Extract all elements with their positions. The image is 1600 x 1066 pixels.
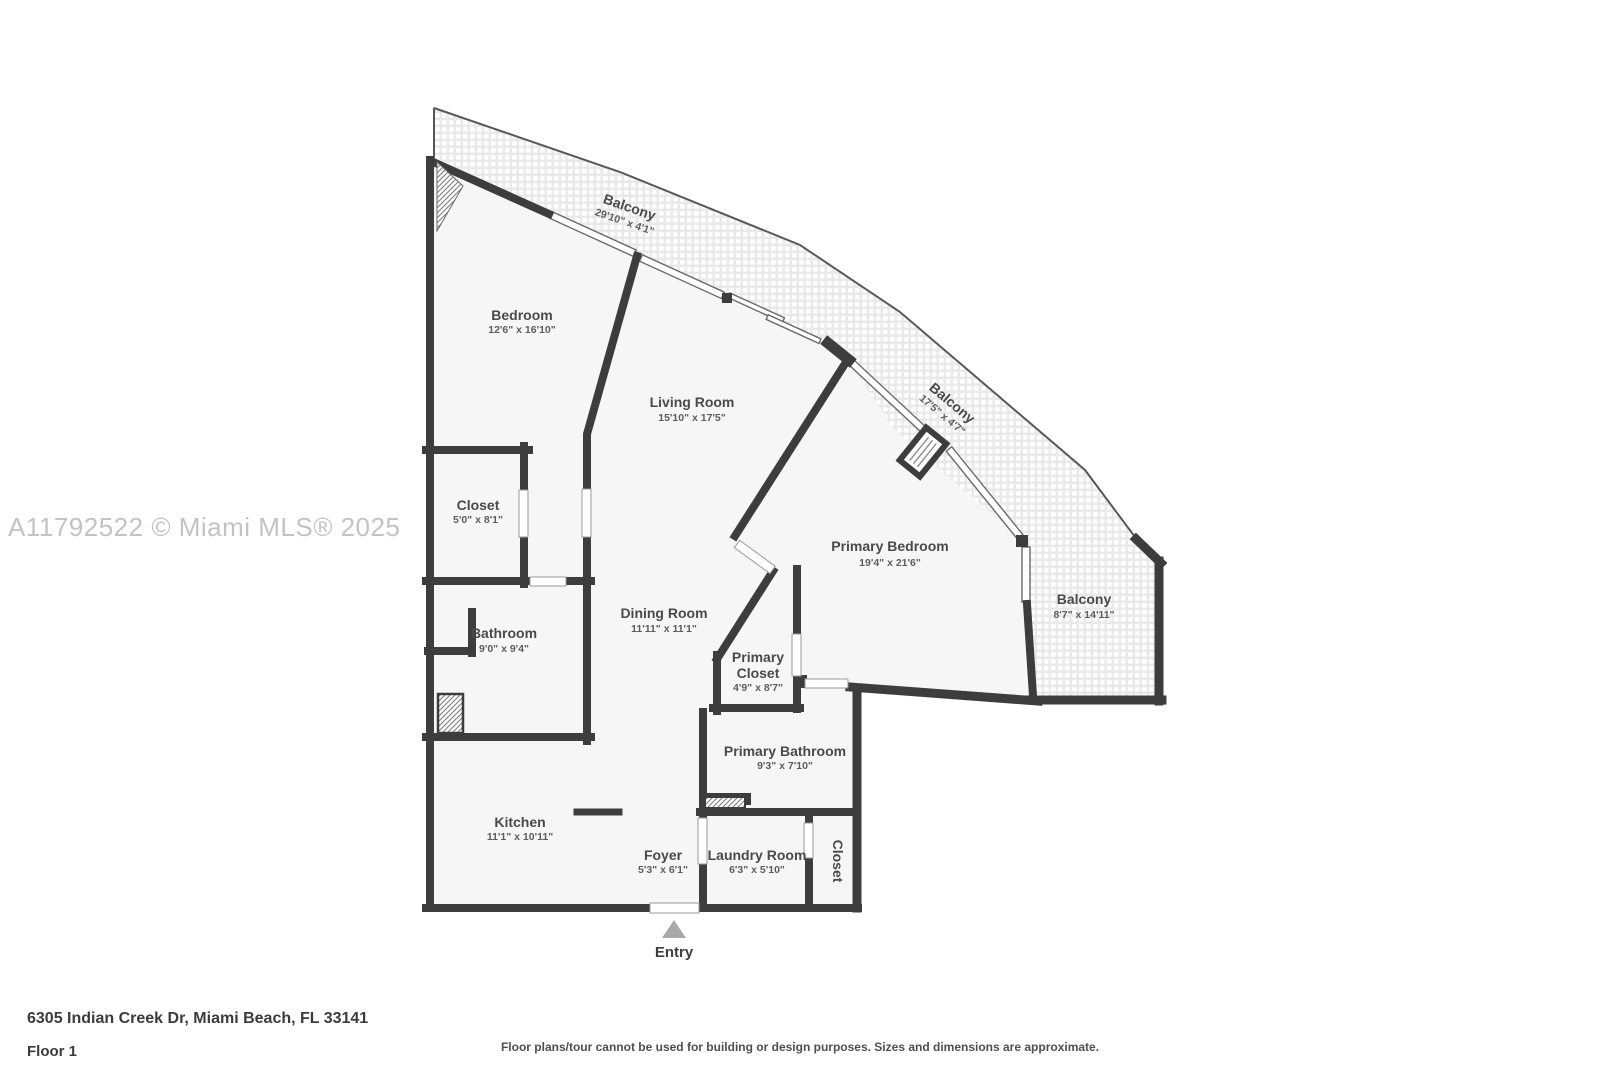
room-label-closet: Closet 5'0" x 8'1": [453, 497, 503, 526]
room-name: Closet: [830, 840, 846, 883]
room-name: Laundry Room: [708, 847, 807, 863]
room-dims: 5'0" x 8'1": [453, 514, 503, 526]
wall-jamb-window-bend: [1016, 535, 1028, 547]
room-label-primary-closet: Primary Closet 4'9" x 8'7": [732, 649, 784, 694]
opening-hall-living: [582, 489, 591, 537]
room-name: Kitchen: [494, 814, 545, 830]
hatch-niche-bathroom: [705, 797, 745, 808]
opening-closet-doors: [519, 490, 528, 537]
hatch-column-kitchen: [438, 694, 463, 733]
room-label-dining-room: Dining Room 11'11" x 11'1": [620, 605, 707, 635]
entry-label: Entry: [655, 944, 694, 961]
room-dims: 11'1" x 10'11": [487, 831, 553, 843]
opening-primary-bedroom: [805, 679, 848, 688]
room-name-line1: Primary: [732, 649, 784, 665]
window-balcony-right: [1022, 547, 1030, 602]
room-name: Primary Bathroom: [724, 743, 846, 759]
room-name: Primary Bedroom: [831, 538, 948, 554]
opening-closet-bathroom: [530, 577, 566, 586]
room-dims: 11'11" x 11'1": [631, 623, 697, 635]
room-label-kitchen: Kitchen 11'1" x 10'11": [487, 814, 553, 843]
room-label-bedroom: Bedroom 12'6" x 16'10": [488, 307, 556, 336]
room-name: Dining Room: [620, 605, 707, 621]
room-dims: 8'7" x 14'11": [1053, 609, 1114, 621]
room-name: Bedroom: [491, 307, 552, 323]
wall-jamb-balcony: [722, 293, 732, 303]
room-label-foyer: Foyer 5'3" x 6'1": [638, 847, 688, 876]
room-name: Foyer: [644, 847, 683, 863]
room-dims: 12'6" x 16'10": [488, 324, 556, 336]
room-dims: 6'3" x 5'10": [729, 864, 785, 876]
entry-arrow-icon: [662, 920, 686, 938]
room-dims: 4'9" x 8'7": [733, 682, 783, 694]
property-address: 6305 Indian Creek Dr, Miami Beach, FL 33…: [27, 1010, 368, 1028]
opening-primary-closet: [792, 634, 801, 676]
room-label-closet-entry: Closet: [830, 840, 846, 883]
room-name: Bathroom: [471, 625, 537, 641]
room-name: Living Room: [650, 394, 735, 410]
room-label-bathroom: Bathroom 9'0" x 9'4": [471, 625, 537, 655]
mls-watermark: A11792522 © Miami MLS® 2025: [8, 512, 400, 543]
room-name: Balcony: [1057, 591, 1112, 607]
room-dims: 5'3" x 6'1": [638, 864, 688, 876]
opening-laundry: [698, 818, 707, 864]
floorplan-page: Balcony 29'10" x 4'1" Bedroom 12'6" x 16…: [0, 0, 1600, 1066]
room-dims: 9'0" x 9'4": [479, 643, 529, 655]
opening-entry: [650, 903, 699, 913]
room-dims: 15'10" x 17'5": [658, 412, 726, 424]
room-name: Closet: [457, 497, 500, 513]
room-dims: 19'4" x 21'6": [859, 557, 921, 569]
room-label-balcony-right: Balcony 8'7" x 14'11": [1053, 591, 1114, 621]
room-label-living-room: Living Room 15'10" x 17'5": [650, 394, 735, 424]
disclaimer-text: Floor plans/tour cannot be used for buil…: [0, 1040, 1600, 1054]
room-name-line2: Closet: [737, 665, 780, 681]
room-dims: 9'3" x 7'10": [757, 760, 813, 772]
